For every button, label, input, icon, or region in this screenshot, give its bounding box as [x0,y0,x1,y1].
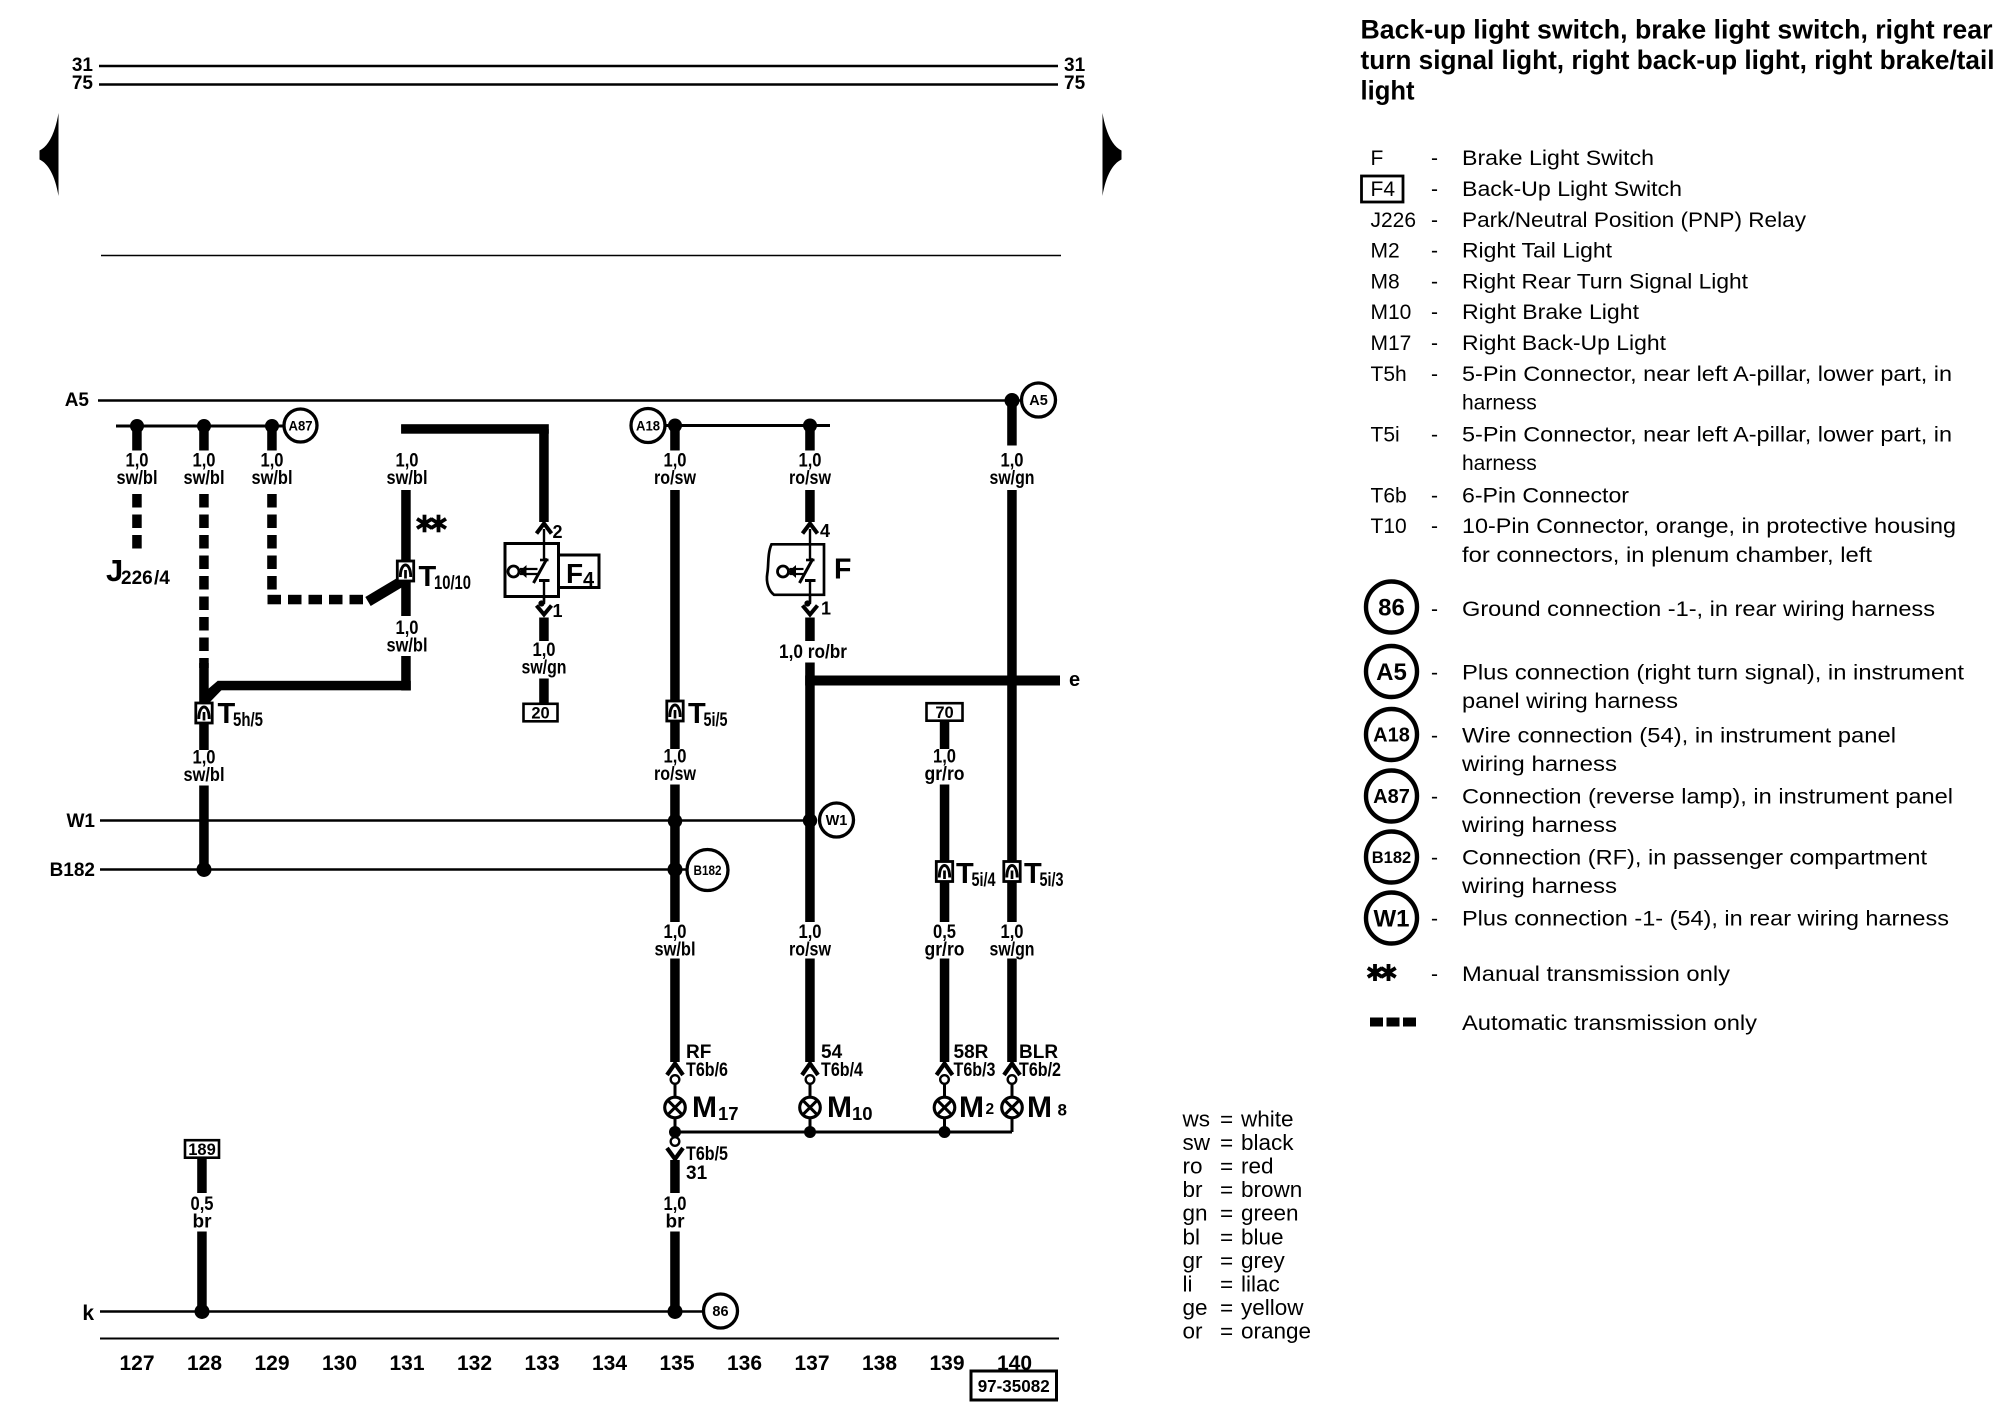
svg-text:lilac: lilac [1241,1272,1280,1297]
svg-text:=: = [1220,1248,1233,1273]
svg-text:-: - [1431,662,1438,685]
svg-text:T5i: T5i [1371,424,1400,447]
svg-text:white: white [1240,1106,1294,1131]
svg-text:10-Pin Connector, orange, in p: 10-Pin Connector, orange, in protective … [1462,515,1956,538]
svg-text:A5: A5 [65,390,90,411]
svg-text:-: - [1431,786,1438,809]
svg-text:5i/4: 5i/4 [972,869,996,891]
svg-text:226: 226 [121,568,153,589]
svg-text:sw/bl: sw/bl [387,636,428,657]
svg-text:J226: J226 [1371,209,1417,232]
svg-text:Plus connection -1- (54), in r: Plus connection -1- (54), in rear wiring… [1462,908,1949,931]
svg-text:T6b/4: T6b/4 [821,1060,863,1081]
svg-text:10/10: 10/10 [434,572,471,594]
svg-text:-: - [1431,363,1438,386]
svg-text:br: br [1183,1177,1204,1202]
svg-text:B182: B182 [1372,849,1411,867]
svg-text:light: light [1361,76,1415,106]
svg-text:red: red [1241,1154,1274,1179]
svg-text:ro/sw: ro/sw [654,764,696,785]
svg-text:ge: ge [1183,1295,1208,1320]
svg-text:-: - [1431,725,1438,748]
svg-text:6-Pin Connector: 6-Pin Connector [1462,484,1629,507]
svg-text:ws: ws [1182,1106,1211,1131]
svg-text:137: 137 [794,1352,829,1375]
svg-text:k: k [82,1302,94,1325]
svg-text:4: 4 [820,521,830,541]
svg-text:-: - [1431,908,1438,931]
svg-text:T5h: T5h [1371,363,1407,386]
svg-text:W1: W1 [1374,906,1410,933]
svg-text:-: - [1431,301,1438,324]
svg-text:-: - [1431,270,1438,293]
svg-text:or: or [1183,1319,1204,1344]
svg-text:97-35082: 97-35082 [978,1376,1050,1396]
svg-text:-: - [1431,424,1438,447]
svg-text:131: 131 [389,1352,424,1375]
svg-text:A87: A87 [1373,786,1410,808]
svg-text:br: br [193,1212,213,1233]
svg-text:Manual transmission only: Manual transmission only [1462,963,1731,986]
svg-text:ro/sw: ro/sw [789,940,831,961]
svg-text:T10: T10 [1371,515,1407,538]
svg-text:17: 17 [718,1103,739,1124]
svg-text:5-Pin Connector, near left A-p: 5-Pin Connector, near left A-pillar, low… [1462,424,1952,447]
svg-text:orange: orange [1241,1319,1311,1344]
svg-text:li: li [1183,1272,1193,1297]
svg-text:5-Pin Connector, near left A-p: 5-Pin Connector, near left A-pillar, low… [1462,363,1952,386]
svg-text:-: - [1431,963,1438,986]
svg-text:yellow: yellow [1241,1295,1304,1320]
svg-text:139: 139 [929,1352,964,1375]
svg-text:A5: A5 [1029,393,1048,409]
svg-text:T6b/6: T6b/6 [686,1060,728,1081]
svg-text:=: = [1220,1272,1233,1297]
svg-text:T6b/2: T6b/2 [1019,1060,1061,1081]
svg-text:135: 135 [659,1352,694,1375]
svg-text:189: 189 [188,1141,216,1159]
svg-text:-: - [1431,147,1438,170]
svg-text:5i/5: 5i/5 [704,709,728,731]
svg-text:F4: F4 [1371,178,1396,201]
svg-text:31: 31 [686,1163,708,1184]
svg-text:=: = [1220,1201,1233,1226]
svg-text:A5: A5 [1376,659,1407,686]
svg-text:=: = [1220,1177,1233,1202]
svg-text:127: 127 [119,1352,154,1375]
svg-text:panel wiring harness: panel wiring harness [1462,690,1678,713]
svg-text:75: 75 [1064,73,1086,94]
svg-text:Ground connection -1-, in rear: Ground connection -1-, in rear wiring ha… [1462,598,1935,621]
svg-text:=: = [1220,1319,1233,1344]
svg-text:70: 70 [935,704,953,722]
svg-text:Back-up light switch, brake li: Back-up light switch, brake light switch… [1361,15,1993,45]
svg-text:=: = [1220,1154,1233,1179]
svg-text:sw/bl: sw/bl [387,468,428,489]
svg-text:bl: bl [1183,1224,1201,1249]
svg-text:-: - [1431,332,1438,355]
svg-text:132: 132 [457,1352,492,1375]
svg-text:grey: grey [1241,1248,1286,1273]
svg-text:133: 133 [524,1352,559,1375]
svg-text:2: 2 [986,1101,995,1118]
svg-text:5h/5: 5h/5 [233,709,263,731]
svg-text:86: 86 [1378,595,1405,622]
svg-text:M10: M10 [1371,301,1412,324]
svg-text:ro: ro [1183,1154,1203,1179]
svg-text:M: M [959,1091,984,1124]
svg-text:gr/ro: gr/ro [925,764,965,785]
svg-text:-: - [1431,484,1438,507]
svg-text:Right Rear Turn Signal Light: Right Rear Turn Signal Light [1462,270,1748,293]
svg-text:-: - [1431,178,1438,201]
svg-text:gr/ro: gr/ro [925,940,965,961]
svg-text:Right Tail Light: Right Tail Light [1462,240,1612,263]
svg-text:sw/bl: sw/bl [117,468,158,489]
svg-text:M: M [827,1091,852,1124]
svg-text:4: 4 [583,569,595,591]
svg-text:B182: B182 [50,860,95,881]
svg-text:Park/Neutral Position (PNP) Re: Park/Neutral Position (PNP) Relay [1462,209,1807,232]
svg-text:5i/3: 5i/3 [1040,869,1064,891]
svg-text:8: 8 [1058,1101,1067,1120]
svg-text:=: = [1220,1224,1233,1249]
svg-text:134: 134 [592,1352,627,1375]
svg-text:75: 75 [72,73,94,94]
svg-text:blue: blue [1241,1224,1284,1249]
svg-text:B182: B182 [694,862,722,878]
svg-text:harness: harness [1462,452,1537,475]
svg-text:Back-Up Light Switch: Back-Up Light Switch [1462,178,1682,201]
svg-text:M2: M2 [1371,240,1400,263]
svg-text:wiring harness: wiring harness [1461,814,1617,837]
svg-text:harness: harness [1462,391,1537,414]
svg-text:for connectors, in plenum cham: for connectors, in plenum chamber, left [1462,544,1872,567]
svg-text:A18: A18 [636,418,660,433]
svg-text:W1: W1 [826,813,848,829]
svg-text:138: 138 [862,1352,897,1375]
svg-text:Connection (RF), in passenger: Connection (RF), in passenger compartmen… [1462,847,1927,870]
svg-text:Right Back-Up Light: Right Back-Up Light [1462,332,1666,355]
svg-text:T6b/3: T6b/3 [954,1060,996,1081]
svg-text:green: green [1241,1201,1299,1226]
svg-text:M8: M8 [1371,270,1400,293]
svg-text:turn signal light, right back-: turn signal light, right back-up light, … [1361,45,1995,75]
svg-text:1: 1 [821,599,831,619]
svg-text:Brake Light Switch: Brake Light Switch [1462,147,1654,170]
svg-text:A87: A87 [289,418,313,433]
svg-text:black: black [1241,1130,1294,1155]
svg-text:=: = [1220,1106,1233,1131]
svg-text:86: 86 [712,1304,728,1320]
svg-text:20: 20 [531,704,549,722]
svg-text:wiring harness: wiring harness [1461,875,1617,898]
svg-text:1,0 ro/br: 1,0 ro/br [779,642,848,663]
svg-text:-: - [1431,240,1438,263]
svg-text:e: e [1069,669,1080,691]
svg-text:-: - [1431,847,1438,870]
svg-text:sw/gn: sw/gn [990,468,1035,489]
svg-text:A18: A18 [1373,725,1410,747]
svg-text:gr: gr [1183,1248,1204,1273]
svg-text:10: 10 [852,1103,873,1124]
svg-text:1: 1 [553,601,563,621]
svg-text:ro/sw: ro/sw [654,468,696,489]
svg-text:-: - [1431,515,1438,538]
svg-text:M17: M17 [1371,332,1412,355]
svg-text:Automatic transmission only: Automatic transmission only [1462,1012,1758,1035]
svg-text:sw: sw [1183,1130,1211,1155]
svg-text:Plus connection (right turn si: Plus connection (right turn signal), in … [1462,662,1964,685]
svg-text:Wire connection (54), in instr: Wire connection (54), in instrument pane… [1462,725,1896,748]
svg-text:-: - [1431,598,1438,621]
svg-text:T6b/5: T6b/5 [686,1144,728,1165]
svg-text:M: M [692,1091,717,1124]
svg-text:128: 128 [187,1352,222,1375]
svg-text:gn: gn [1183,1201,1208,1226]
svg-text:Connection (reverse lamp), in: Connection (reverse lamp), in instrument… [1462,786,1953,809]
svg-text:sw/bl: sw/bl [184,468,225,489]
svg-text:sw/gn: sw/gn [522,658,567,679]
svg-text:sw/bl: sw/bl [655,940,696,961]
svg-text:ro/sw: ro/sw [789,468,831,489]
svg-text:F: F [1371,147,1384,170]
svg-text:br: br [666,1212,686,1233]
svg-text:/4: /4 [154,568,170,589]
svg-text:sw/bl: sw/bl [184,765,225,786]
svg-text:wiring harness: wiring harness [1461,753,1617,776]
svg-text:F: F [566,558,583,589]
svg-text:130: 130 [322,1352,357,1375]
svg-text:129: 129 [254,1352,289,1375]
svg-text:sw/gn: sw/gn [990,940,1035,961]
svg-text:=: = [1220,1295,1233,1320]
svg-text:Right Brake Light: Right Brake Light [1462,301,1639,324]
svg-text:2: 2 [553,522,563,542]
svg-text:brown: brown [1241,1177,1302,1202]
svg-text:F: F [834,554,851,586]
svg-text:M: M [1027,1091,1052,1124]
svg-text:=: = [1220,1130,1233,1155]
svg-text:T6b: T6b [1371,484,1407,507]
svg-text:W1: W1 [67,811,96,832]
svg-text:sw/bl: sw/bl [252,468,293,489]
svg-text:-: - [1431,209,1438,232]
svg-text:136: 136 [727,1352,762,1375]
